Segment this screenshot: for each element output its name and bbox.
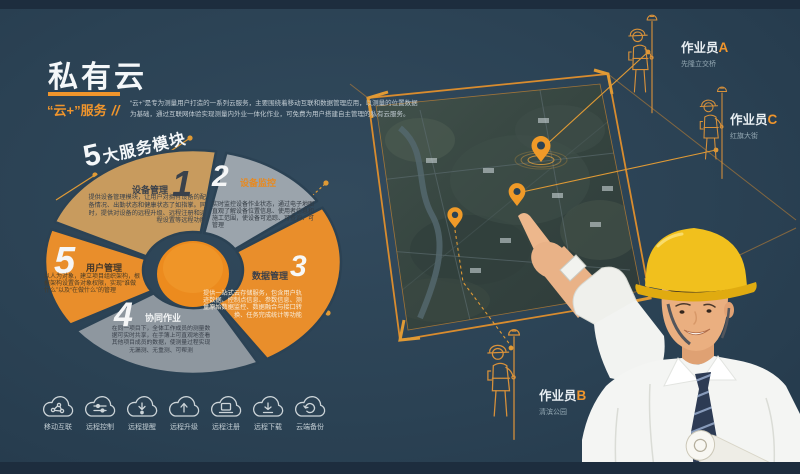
- worker-location: 先隆立交桥: [681, 59, 728, 69]
- eye: [707, 309, 712, 313]
- feature-label: 远程注册: [206, 422, 246, 432]
- segment-number: 2: [212, 162, 229, 192]
- segment-desc: 以人为对象，建立项目组织架构，根据架构设置各对象权限，实现“谁做什么”以及“在做…: [44, 274, 140, 296]
- worker-label-c: 作业员C 红旗大街: [730, 109, 777, 141]
- feature-label: 移动互联: [38, 422, 78, 432]
- engineer-photo: [498, 208, 800, 474]
- surveyor-figure-c: [700, 87, 726, 179]
- page-title: 私有云: [48, 52, 147, 96]
- worker-role: 作业员: [730, 113, 768, 127]
- feature-label: 远程控制: [80, 422, 120, 432]
- center-highlight: [163, 243, 223, 293]
- segment-title: 数据管理: [242, 272, 288, 281]
- feature-label: 远程升级: [164, 422, 204, 432]
- feature-label: 云端备份: [290, 422, 330, 432]
- feature-mobile-internet: 移动互联: [38, 395, 78, 432]
- service-modules-diagram: 设备管理 1 提供设备管理模块，让用户对拥有设备的配备情况、出勤状态和健康状态了…: [28, 102, 358, 392]
- download-cloud-icon: [250, 395, 286, 421]
- segment-desc: 提供一站式云存储服务，包含用户轨迹数据、控制点信息、参数信息、测量原始数据监控、…: [198, 290, 302, 319]
- feature-remote-remind: 远程提醒: [122, 395, 162, 432]
- segment-desc: 提供设备管理模块，让用户对拥有设备的配备情况、出勤状态和健康状态了如指掌。同时，…: [84, 194, 206, 225]
- feature-remote-register: 远程注册: [206, 395, 246, 432]
- worker-location: 红旗大街: [730, 131, 777, 141]
- top-border-bar: [0, 0, 800, 9]
- worker-label-a: 作业员A 先隆立交桥: [681, 37, 728, 69]
- sliders-cloud-icon: [82, 395, 118, 421]
- network-cloud-icon: [40, 395, 76, 421]
- worker-letter: C: [768, 112, 778, 127]
- hard-hat: [645, 228, 747, 292]
- private-cloud-poster: { "header": { "title": "私有云", "service_l…: [0, 0, 800, 474]
- segment-desc: 实时监控设备作业状态，通过电子地图直观了解设备位置信息、使用者信息和施工范围，使…: [212, 202, 314, 230]
- laptop-cloud-icon: [208, 395, 244, 421]
- surveyor-figure-a: [629, 15, 657, 113]
- segment-desc: 在同一项目下，全体工作成员的测量数据可实时共享，在手簿上可直观地查看其他项目成员…: [110, 326, 212, 355]
- feature-remote-download: 远程下载: [248, 395, 288, 432]
- feature-label: 远程提醒: [122, 422, 162, 432]
- cloud-feature-row: 移动互联 远程控制 远程提醒 远程升级 远程注册: [38, 395, 330, 432]
- arrow-up-cloud-icon: [166, 395, 202, 421]
- pointing-arm: [518, 213, 665, 386]
- arrow-down-dot-cloud-icon: [124, 395, 160, 421]
- feature-cloud-backup: 云端备份: [290, 395, 330, 432]
- worker-role: 作业员: [681, 41, 719, 55]
- segment-title: 设备监控: [240, 179, 276, 188]
- feature-label: 远程下载: [248, 422, 288, 432]
- feature-remote-control: 远程控制: [80, 395, 120, 432]
- feature-remote-upgrade: 远程升级: [164, 395, 204, 432]
- bottom-border-bar: [0, 462, 800, 474]
- segment-title: 用户管理: [86, 264, 122, 273]
- segment-title: 协同作业: [145, 314, 181, 323]
- title-underline: [48, 92, 120, 96]
- eye: [680, 310, 685, 314]
- worker-letter: A: [719, 40, 729, 55]
- segment-number: 3: [290, 252, 307, 282]
- sync-cloud-icon: [292, 395, 328, 421]
